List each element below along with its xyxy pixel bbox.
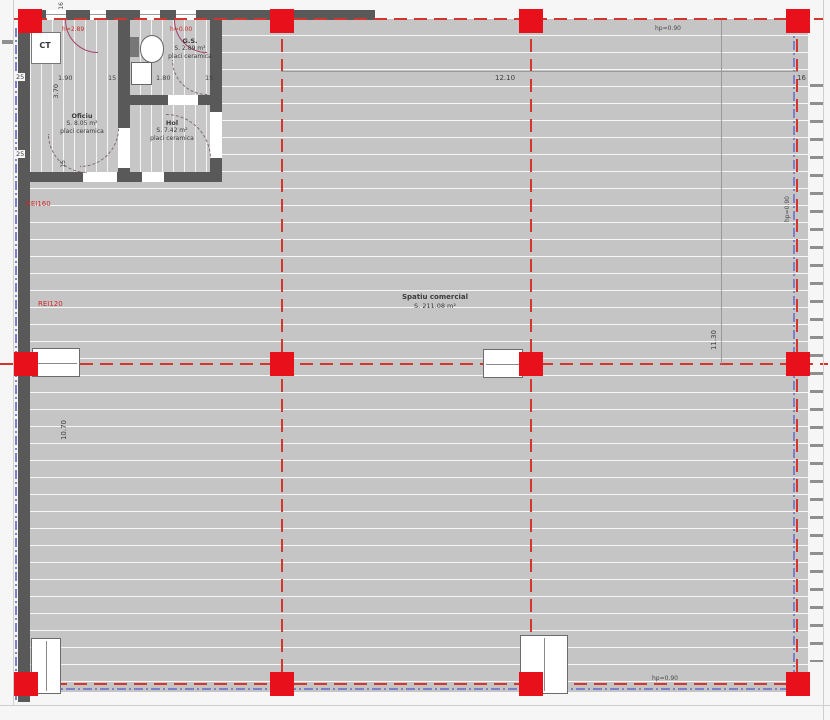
dim-bay-edge: 16 (797, 74, 806, 83)
dim-window-top: 16 (58, 2, 66, 10)
room-label-commercial: Spatiu comercial S. 211.08 m² (385, 293, 485, 311)
room-label-oficiu: Oficiu S. 8.05 m² placi ceramica (50, 112, 114, 135)
facade-mullion-ticks (810, 84, 823, 662)
room-name: G.S. (158, 37, 222, 45)
dim-wall-left-top: 25 (15, 73, 25, 81)
sheet-edge-bottom (0, 705, 830, 706)
door-opening-bottom-b (142, 172, 164, 182)
dim-partition-b: 15 (205, 74, 213, 82)
dim-oficiu-width: 1.90 (58, 74, 72, 82)
dim-oficiu-height: 3.70 (52, 84, 60, 98)
door-opening-gs (168, 95, 198, 105)
room-label-hol: Hol S. 7.42 m² placi ceramica (140, 119, 204, 142)
floor-plan-sheet: CT Oficiu S. 8.05 m² placi ceramica G.S.… (0, 0, 830, 720)
dim-hall-height-left: 10.70 (60, 420, 69, 440)
dim-partition-a: 15 (108, 74, 116, 82)
room-label-gs: G.S. S. 2.89 m² placi ceramica (158, 37, 222, 60)
room-name: Spatiu comercial (385, 293, 485, 302)
column-marker (519, 9, 543, 33)
room-area: S. 211.08 m² (385, 302, 485, 310)
column-casing-center (483, 349, 523, 378)
door-opening-bottom-a (83, 172, 117, 182)
room-finish: placi ceramica (158, 53, 222, 61)
casing-glass-line (544, 638, 545, 691)
slab-contour-bottom (15, 688, 801, 690)
casing-glass-line (35, 363, 77, 364)
sheet-edge-right (823, 0, 824, 720)
casing-glass-line (486, 364, 520, 365)
column-marker (786, 9, 810, 33)
door-opening-hol (210, 112, 222, 158)
parapet-height-bottom: hp=0.90 (652, 675, 678, 683)
room-area: S. 2.89 m² (158, 45, 222, 53)
column-marker (519, 672, 543, 696)
sink (131, 62, 152, 85)
toilet-tank (130, 37, 139, 57)
dim-wall-left-mid: 25 (15, 150, 25, 158)
room-label-ct: CT (33, 41, 57, 51)
dim-bay-height-right: 11.30 (710, 330, 719, 350)
room-finish: placi ceramica (50, 128, 114, 136)
room-block-wall-bottom (18, 172, 222, 182)
dim-gs-width: 1.80 (156, 74, 170, 82)
column-marker (14, 672, 38, 696)
casing-glass-line (46, 641, 47, 691)
dim-bay-width: 12.10 (495, 74, 515, 83)
window-height-label-right: h=0.00 (170, 26, 192, 34)
column-marker (519, 352, 543, 376)
door-opening-oficiu (118, 128, 130, 168)
column-marker (270, 672, 294, 696)
axis-line-C (14, 683, 812, 685)
fire-rating-label-lower: REI120 (38, 300, 63, 309)
room-area: S. 7.42 m² (140, 127, 204, 135)
column-marker (786, 672, 810, 696)
fire-rating-label-upper: REI160 (26, 200, 51, 209)
dimension-line-right (721, 20, 722, 364)
axis-line-B (0, 363, 828, 365)
axis-line-A (14, 18, 824, 20)
room-name: Hol (140, 119, 204, 127)
sheet-edge-left (13, 0, 14, 706)
room-finish: placi ceramica (140, 135, 204, 143)
room-area: S. 8.05 m² (50, 120, 114, 128)
window-casing-left-mid (32, 348, 80, 377)
dim-door-bottom: 15 (60, 160, 68, 168)
column-marker (270, 352, 294, 376)
room-name: Oficiu (50, 112, 114, 120)
parapet-height-right: hp=0.90 (784, 196, 792, 222)
column-marker (270, 9, 294, 33)
window-height-label-left: h=2.89 (62, 26, 84, 34)
column-marker (786, 352, 810, 376)
column-marker (14, 352, 38, 376)
parapet-height-top: hp=0.90 (655, 25, 681, 33)
column-marker (18, 9, 42, 33)
